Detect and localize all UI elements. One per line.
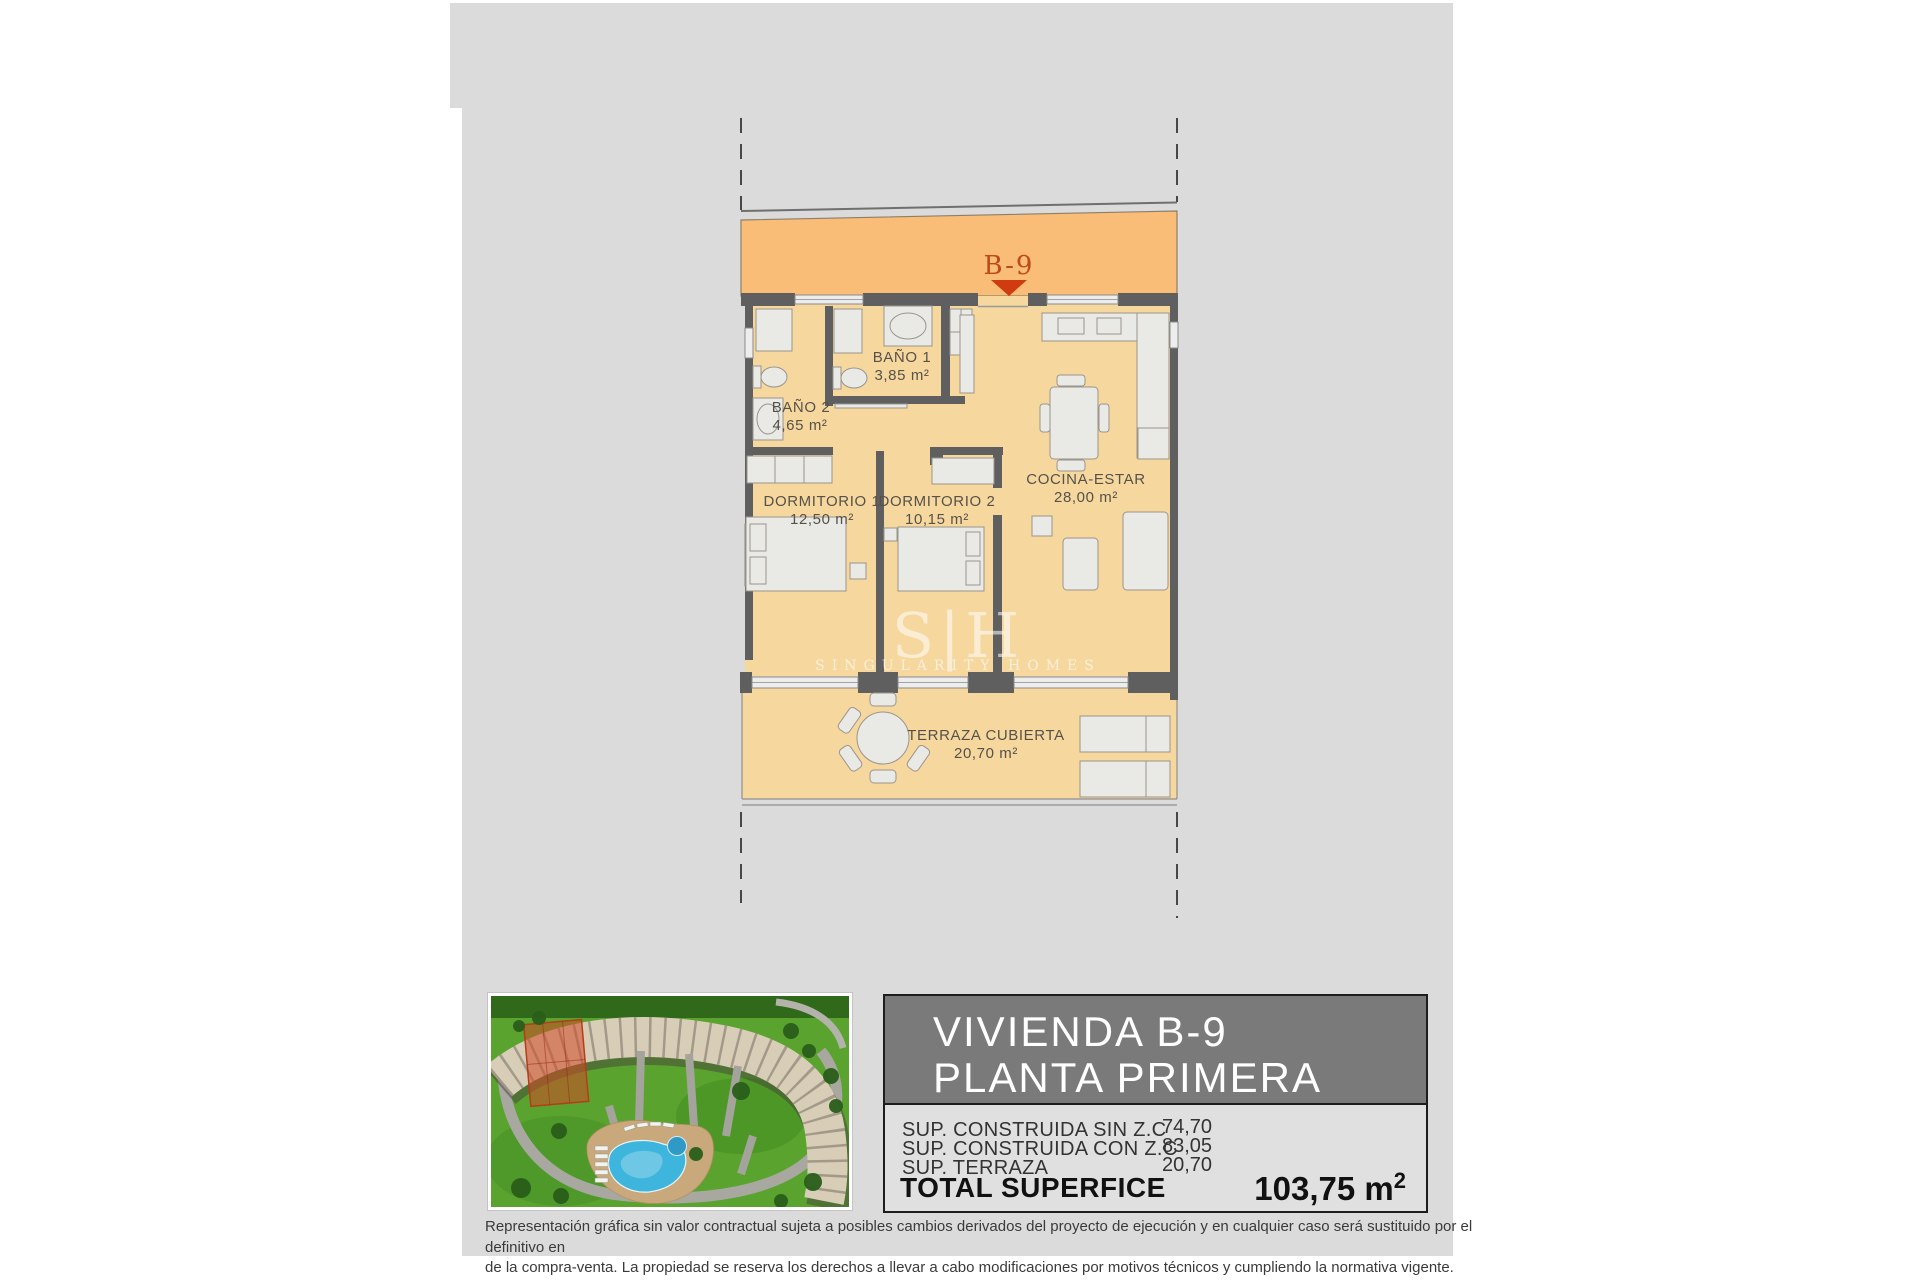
sink <box>890 313 926 339</box>
room-area-cocina: 28,00 m² <box>1054 489 1118 506</box>
kitchen-sink <box>1058 318 1084 334</box>
room-area-dorm2: 10,15 m² <box>905 511 969 528</box>
dining-table <box>1050 387 1098 459</box>
surface-row-value: 20,70 <box>1162 1154 1212 1177</box>
nightstand <box>884 528 897 541</box>
sofa <box>1123 512 1168 590</box>
room-area-bano1: 3,85 m² <box>874 367 929 384</box>
chair <box>1057 375 1085 386</box>
room-label-bano1: BAÑO 1 <box>873 349 932 366</box>
pillow <box>966 561 980 585</box>
terrace-table <box>857 712 909 764</box>
washer <box>756 309 792 351</box>
toilet <box>761 367 787 387</box>
total-surface-label: TOTAL SUPERFICE <box>900 1172 1166 1204</box>
info-panel-header: VIVIENDA B-9 PLANTA PRIMERA <box>885 996 1426 1105</box>
room-area-terraza: 20,70 m² <box>954 745 1018 762</box>
unit-title: VIVIENDA B-9 <box>933 1008 1228 1056</box>
total-surface-exponent: 2 <box>1394 1168 1406 1193</box>
watermark-brand: SINGULARITY HOMES <box>815 658 1101 674</box>
sun-lounger <box>1080 716 1170 752</box>
toilet-tank <box>753 366 761 388</box>
info-panel-body: SUP. CONSTRUIDA SIN Z.C 74,70 SUP. CONST… <box>885 1105 1426 1211</box>
sun-lounger <box>1080 761 1170 797</box>
toilet-tank <box>833 367 841 389</box>
room-label-cocina: COCINA-ESTAR <box>1026 471 1145 488</box>
toilet <box>841 368 867 388</box>
disclaimer-line-1: Representación gráfica sin valor contrac… <box>485 1217 1495 1258</box>
chair <box>1099 404 1109 432</box>
room-label-terraza: TERRAZA CUBIERTA <box>907 727 1064 744</box>
disclaimer-line-2: de la compra-venta. La propiedad se rese… <box>485 1258 1495 1279</box>
kitchen-island <box>1138 428 1169 459</box>
kitchen-counter <box>1042 313 1138 341</box>
pillow <box>966 532 980 556</box>
counter <box>835 404 907 408</box>
floor-title: PLANTA PRIMERA <box>933 1054 1322 1102</box>
chair <box>1040 404 1050 432</box>
pillow <box>750 557 766 584</box>
closet <box>834 309 862 353</box>
info-panel: VIVIENDA B-9 PLANTA PRIMERA SUP. CONSTRU… <box>883 994 1428 1213</box>
room-area-bano2: 4,65 m² <box>772 417 827 434</box>
disclaimer: Representación gráfica sin valor contrac… <box>485 1217 1495 1279</box>
pillow <box>750 524 766 551</box>
unit-marker-label: B-9 <box>984 251 1035 281</box>
total-surface-number: 103,75 m <box>1254 1170 1393 1207</box>
spa <box>668 1137 687 1156</box>
sofa <box>1063 538 1098 590</box>
room-label-bano2: BAÑO 2 <box>772 399 831 416</box>
highlighted-building <box>524 1020 589 1107</box>
site-aerial-illustration <box>491 996 849 1207</box>
chair <box>1057 460 1085 471</box>
closet <box>932 458 994 484</box>
wardrobe <box>747 456 832 483</box>
access-band <box>741 211 1177 296</box>
hall-closet <box>960 315 974 393</box>
room-label-dorm1: DORMITORIO 1 <box>764 493 881 510</box>
cooktop <box>1097 318 1121 334</box>
nightstand <box>850 563 866 579</box>
room-label-dorm2: DORMITORIO 2 <box>879 493 996 510</box>
facade-line <box>741 203 1177 212</box>
room-area-dorm1: 12,50 m² <box>790 511 854 528</box>
site-aerial-photo <box>487 992 853 1211</box>
total-surface-value: 103,75 m2 <box>1254 1168 1406 1208</box>
coffee-table <box>1032 516 1052 536</box>
